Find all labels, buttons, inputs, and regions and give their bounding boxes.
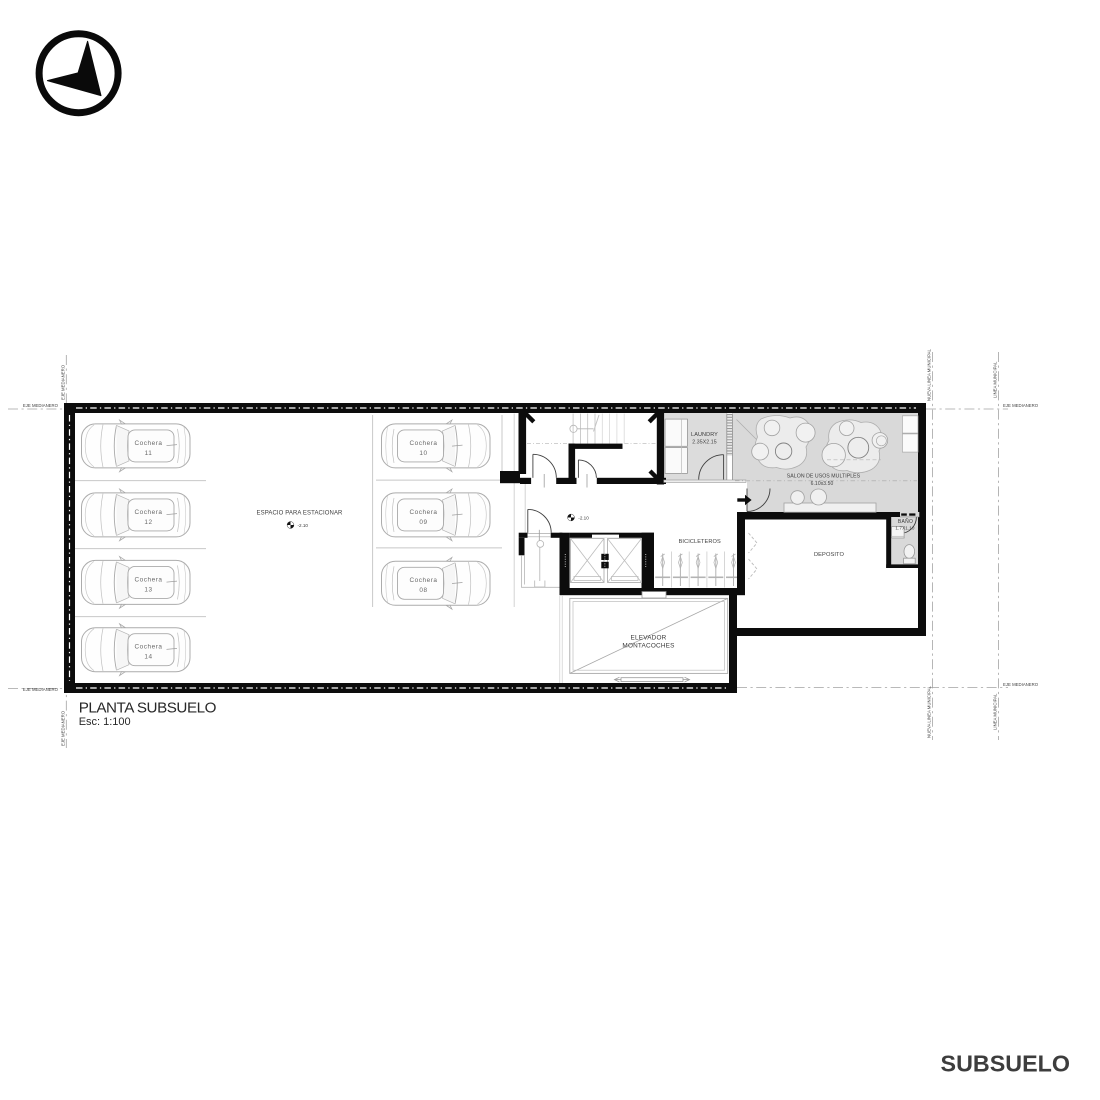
svg-text:Cochera: Cochera xyxy=(134,576,162,583)
svg-text:ESPACIO PARA ESTACIONAR: ESPACIO PARA ESTACIONAR xyxy=(257,510,344,516)
svg-text:EJE MEDIANERO: EJE MEDIANERO xyxy=(1003,403,1039,408)
svg-text:09: 09 xyxy=(419,519,427,526)
svg-text:1.7X1.10: 1.7X1.10 xyxy=(895,525,915,530)
svg-text:13: 13 xyxy=(144,586,152,593)
svg-text:-2.10: -2.10 xyxy=(298,523,309,528)
svg-text:-2.10: -2.10 xyxy=(578,516,589,521)
svg-text:08: 08 xyxy=(419,587,427,594)
svg-text:NUEVA LINEA MUNICIPAL: NUEVA LINEA MUNICIPAL xyxy=(927,348,932,401)
svg-text:PLANTA SUBSUELO: PLANTA SUBSUELO xyxy=(79,700,217,717)
svg-text:EJE MEDIANERO: EJE MEDIANERO xyxy=(23,687,59,692)
svg-text:DEPOSITO: DEPOSITO xyxy=(814,552,845,558)
svg-text:EJE MEDIANERO: EJE MEDIANERO xyxy=(23,403,59,408)
svg-text:NUEVA LINEA MUNICIPAL: NUEVA LINEA MUNICIPAL xyxy=(927,685,932,738)
svg-text:Cochera: Cochera xyxy=(134,644,162,651)
svg-text:BAÑO: BAÑO xyxy=(898,518,913,525)
svg-text:Esc: 1:100: Esc: 1:100 xyxy=(79,716,131,728)
svg-text:Cochera: Cochera xyxy=(134,509,162,516)
svg-text:14: 14 xyxy=(144,654,152,661)
svg-text:Cochera: Cochera xyxy=(409,440,437,447)
svg-text:6.10x3.50: 6.10x3.50 xyxy=(811,481,834,487)
svg-text:BICICLETEROS: BICICLETEROS xyxy=(679,539,721,545)
svg-text:12: 12 xyxy=(144,519,152,526)
svg-text:Cochera: Cochera xyxy=(134,440,162,447)
svg-text:MONTACOCHES: MONTACOCHES xyxy=(622,643,674,650)
svg-text:Cochera: Cochera xyxy=(409,577,437,584)
svg-text:SUBSUELO: SUBSUELO xyxy=(941,1051,1070,1077)
svg-text:LAUNDRY: LAUNDRY xyxy=(691,432,718,438)
svg-text:ELEVADOR: ELEVADOR xyxy=(631,635,667,642)
svg-text:EJE MEDIANERO: EJE MEDIANERO xyxy=(61,710,66,746)
svg-text:Cochera: Cochera xyxy=(409,509,437,516)
svg-text:SALON DE USOS MULTIPLES: SALON DE USOS MULTIPLES xyxy=(787,473,861,479)
svg-text:LINEA MUNICIPAL: LINEA MUNICIPAL xyxy=(993,693,998,730)
svg-text:10: 10 xyxy=(419,450,427,457)
svg-text:EJE MEDIANERO: EJE MEDIANERO xyxy=(61,364,66,400)
svg-text:2.35X2.15: 2.35X2.15 xyxy=(692,440,717,446)
svg-text:LINEA MUNICIPAL: LINEA MUNICIPAL xyxy=(993,361,998,398)
svg-text:11: 11 xyxy=(145,450,153,457)
svg-text:EJE MEDIANERO: EJE MEDIANERO xyxy=(1003,682,1039,687)
